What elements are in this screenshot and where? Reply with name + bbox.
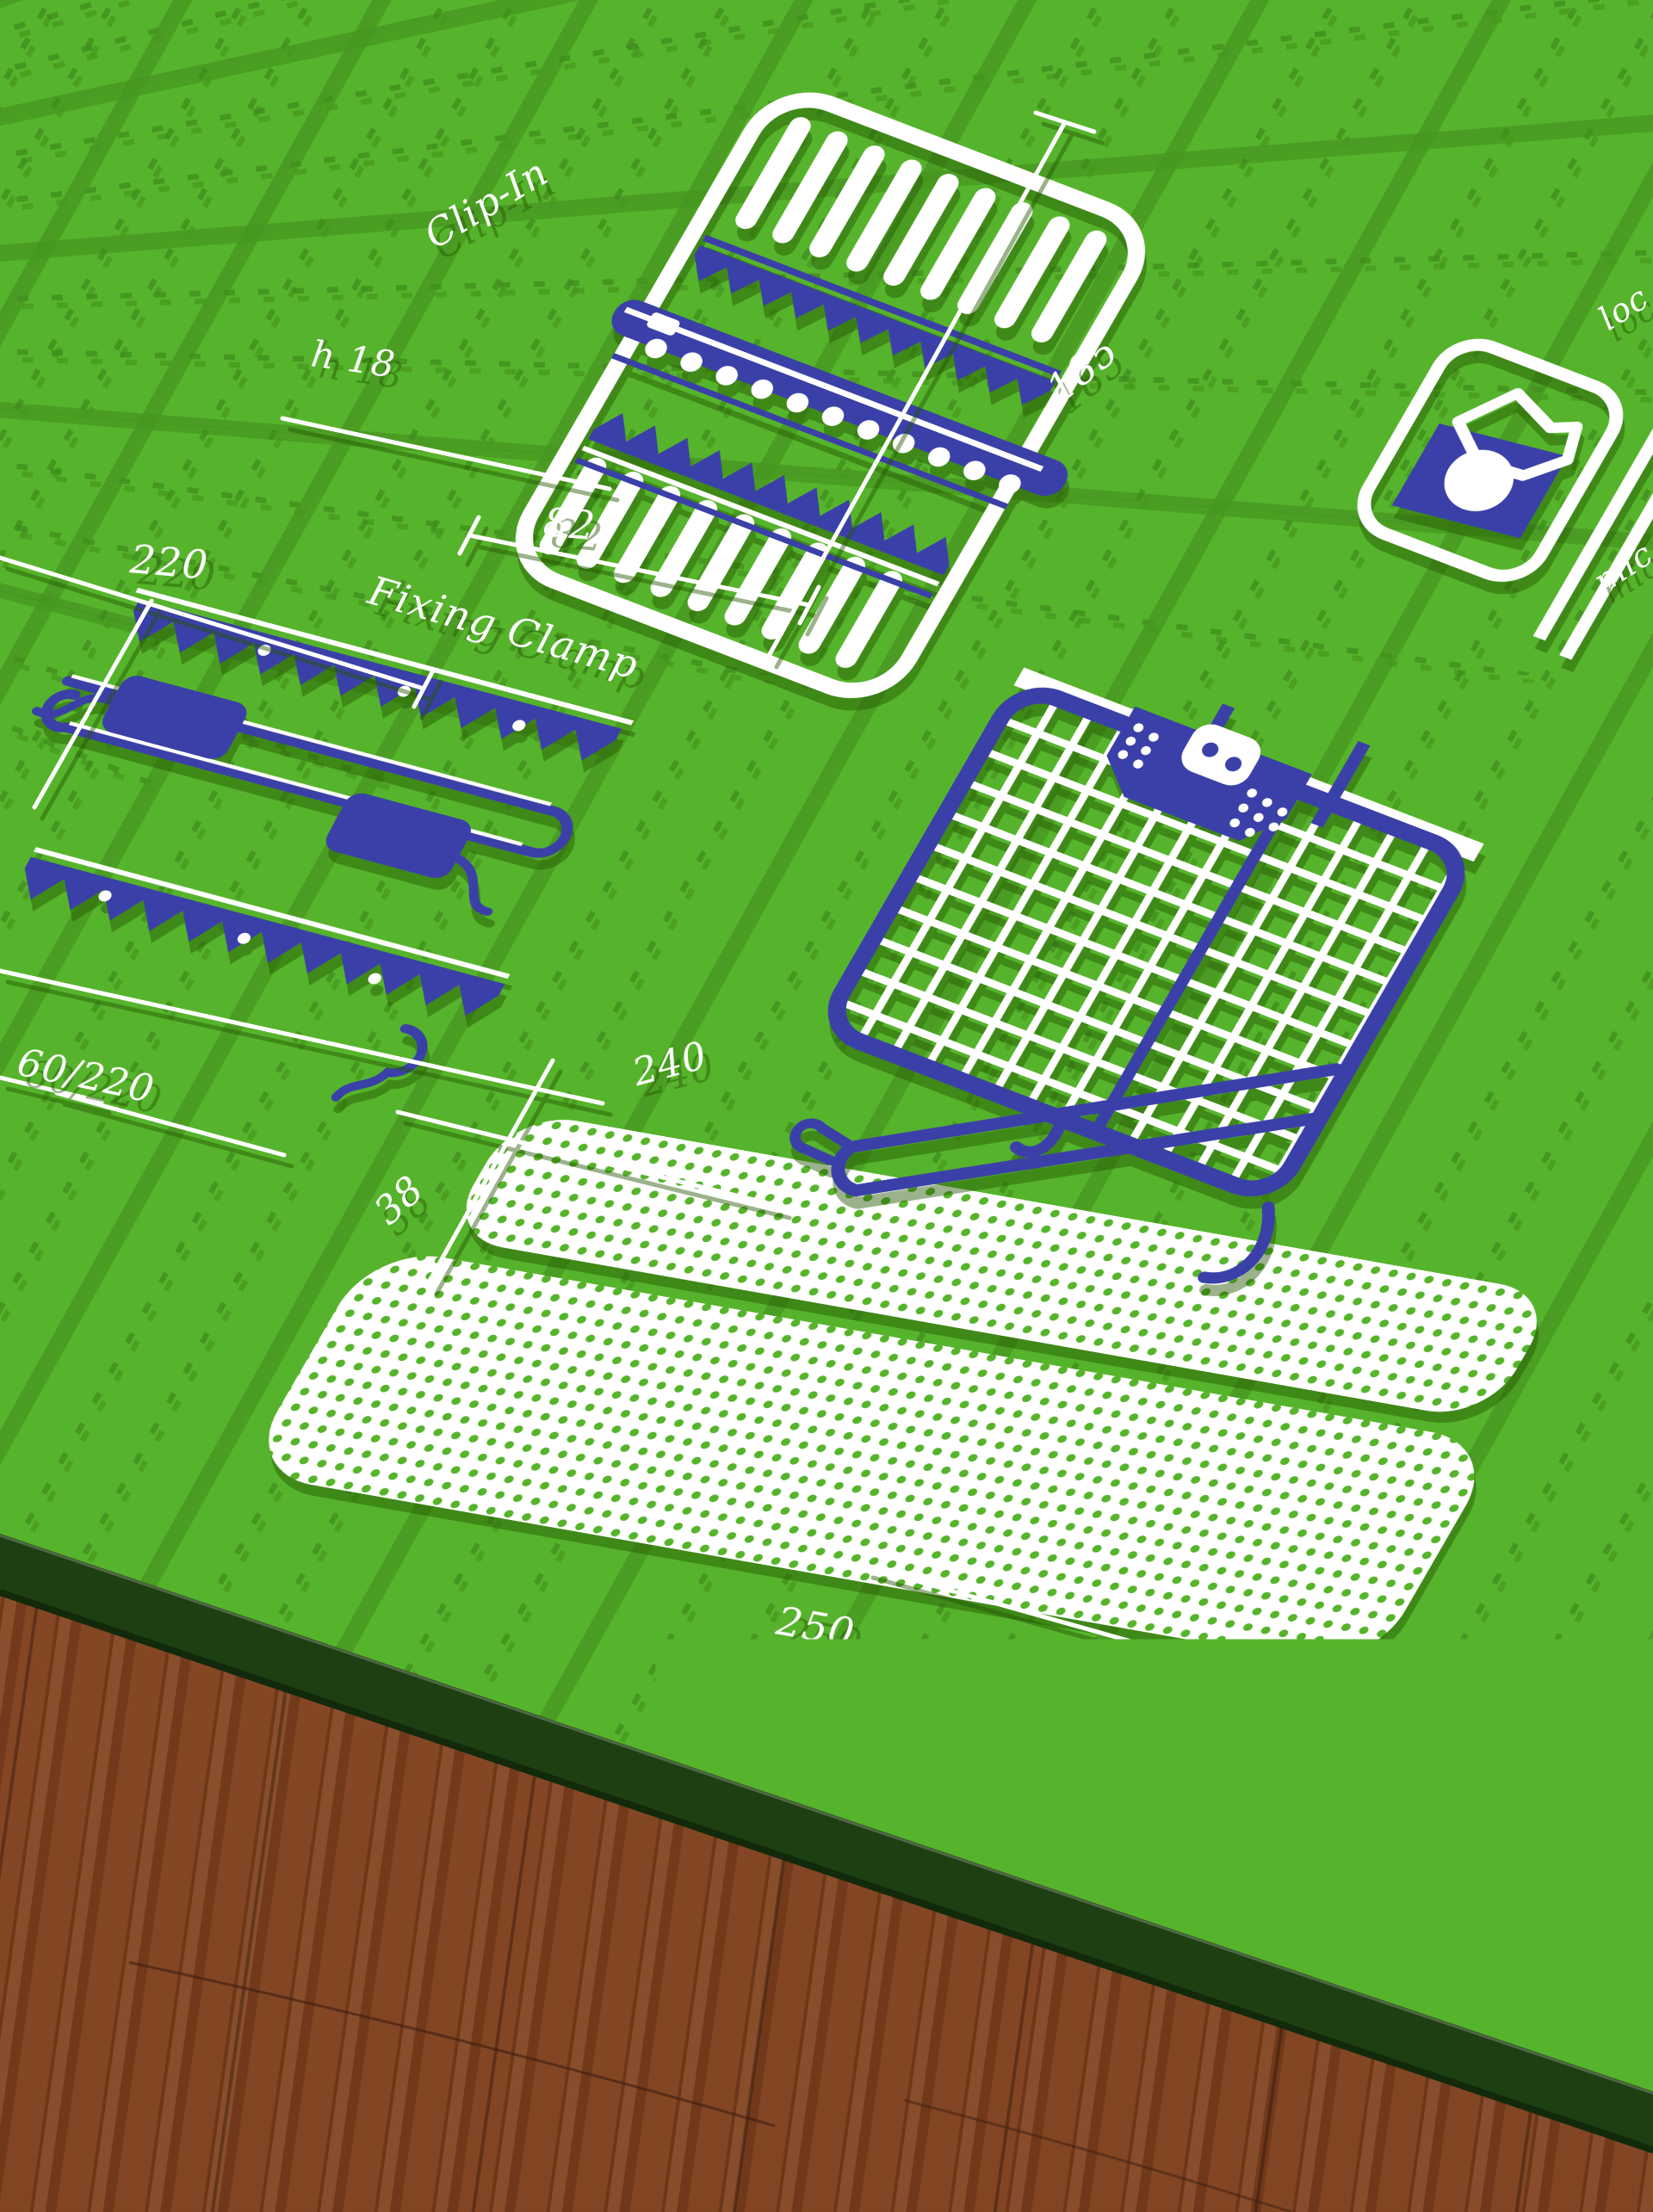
- label-82: 82: [542, 498, 597, 549]
- green-mat: Clip-In h 18 82 220 Fixing Clamp 185 60/…: [0, 0, 1653, 2212]
- blueprint-photo-scene: Clip-In h 18 82 220 Fixing Clamp 185 60/…: [0, 0, 1653, 2212]
- wood-crack: [904, 2100, 1291, 2212]
- blueprint-sheet: Clip-In h 18 82 220 Fixing Clamp 185 60/…: [0, 0, 1653, 2212]
- label-220: 220: [127, 535, 210, 589]
- wood-crack: [129, 1962, 775, 2126]
